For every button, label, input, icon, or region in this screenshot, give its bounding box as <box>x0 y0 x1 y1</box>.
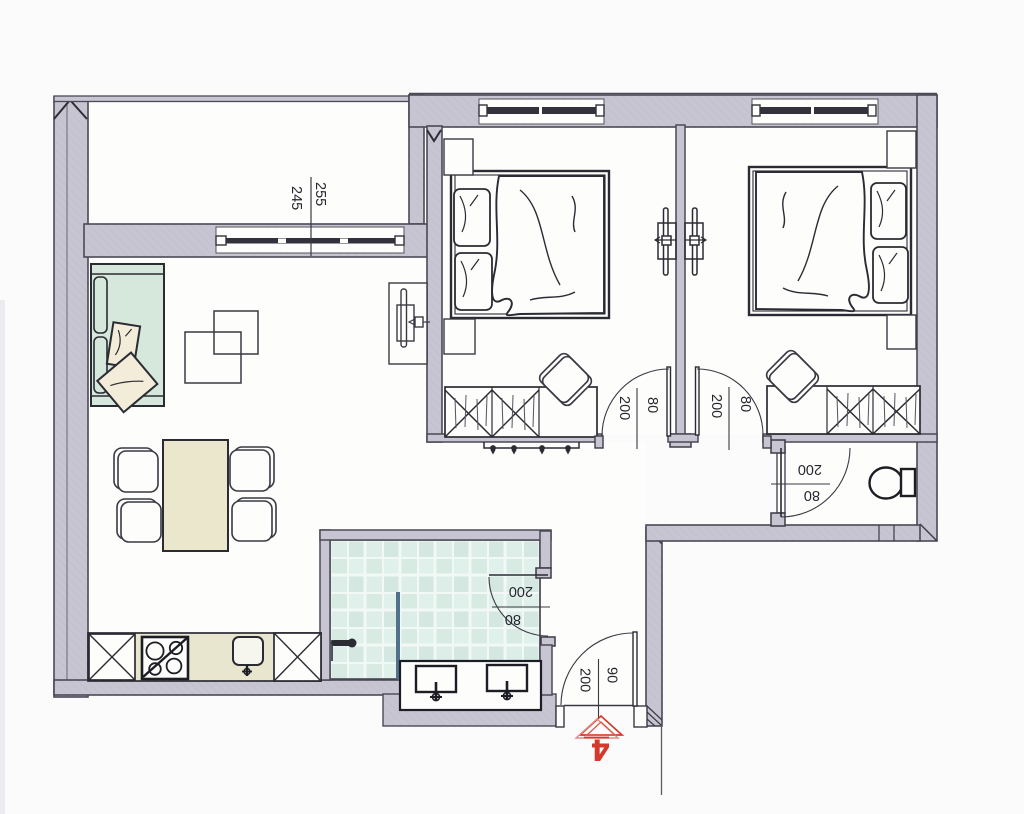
svg-text:80: 80 <box>644 397 660 413</box>
svg-text:200: 200 <box>708 394 724 418</box>
svg-text:90: 90 <box>604 667 620 683</box>
svg-text:200: 200 <box>798 461 822 477</box>
svg-text:200: 200 <box>509 583 533 599</box>
svg-text:200: 200 <box>616 396 632 420</box>
svg-text:200: 200 <box>577 668 593 692</box>
svg-text:4: 4 <box>592 733 609 766</box>
svg-text:80: 80 <box>737 396 753 412</box>
svg-text:245: 245 <box>288 186 304 210</box>
svg-text:255: 255 <box>312 182 328 206</box>
svg-text:80: 80 <box>505 611 521 627</box>
svg-text:80: 80 <box>804 487 820 503</box>
